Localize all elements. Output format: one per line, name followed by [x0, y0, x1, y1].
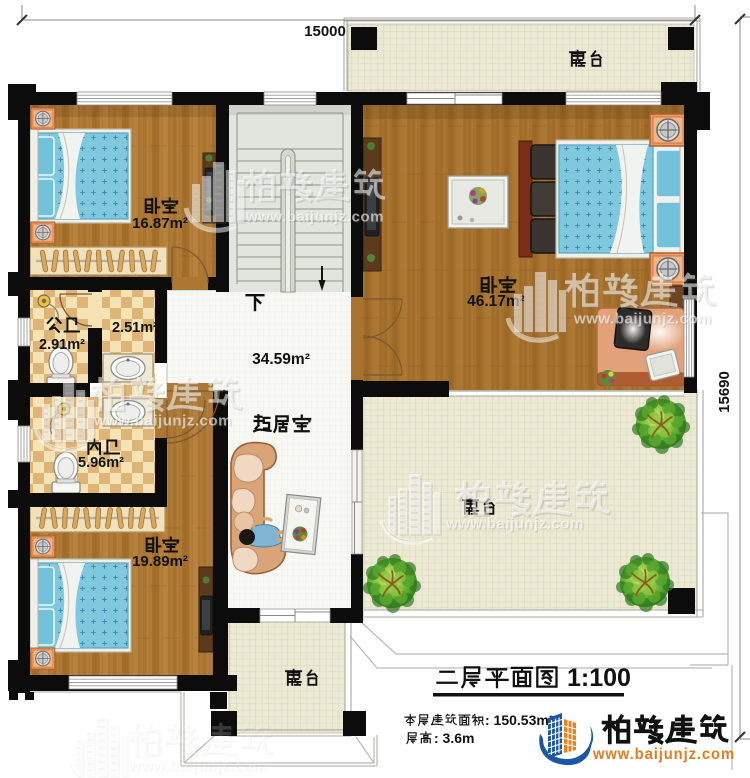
svg-text:16.87m²: 16.87m²: [132, 215, 188, 232]
svg-text:34.59m²: 34.59m²: [252, 351, 310, 368]
svg-text:2.91m²: 2.91m²: [39, 337, 85, 353]
svg-text:: 150.53m²: : 150.53m²: [485, 712, 554, 728]
svg-text:www.baijunjz.com: www.baijunjz.com: [592, 746, 735, 763]
svg-text:: 3.6m: : 3.6m: [434, 730, 474, 746]
svg-text:www.baijunjz.com: www.baijunjz.com: [573, 311, 712, 328]
svg-text:5.96m²: 5.96m²: [78, 455, 124, 471]
svg-text:www.baijunjz.com: www.baijunjz.com: [445, 516, 584, 533]
svg-text:15690: 15690: [716, 371, 733, 413]
svg-text:www.baijunjz.com: www.baijunjz.com: [245, 209, 384, 226]
svg-text:www.baijunjz.com: www.baijunjz.com: [93, 413, 232, 430]
svg-text:1:100: 1:100: [567, 664, 631, 692]
svg-text:www.baijunjz.com: www.baijunjz.com: [128, 758, 267, 775]
svg-text:15000: 15000: [304, 23, 346, 40]
svg-text:2.51m²: 2.51m²: [112, 320, 158, 336]
svg-text:19.89m²: 19.89m²: [132, 553, 188, 570]
